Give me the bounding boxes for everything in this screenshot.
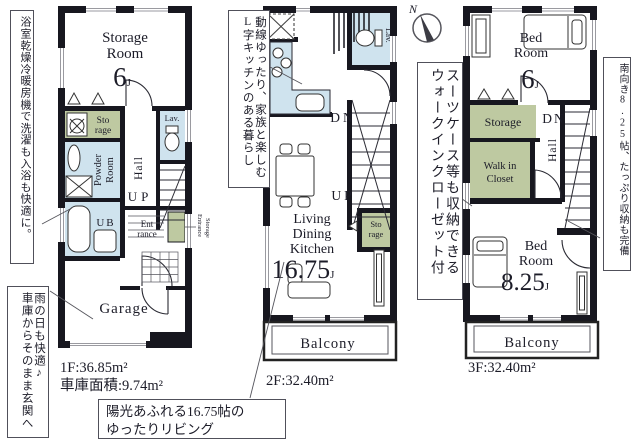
sto-label-2f-2: rage (369, 229, 384, 239)
callout-kitchen-line1: 動線ゆったり、家族と楽しむ (254, 16, 266, 182)
tv-board-icon-3f (577, 272, 587, 314)
lav-label-2f: Lav. (384, 28, 394, 43)
entrance-storage-label-2: Storage (204, 218, 211, 238)
callout-kitchen: 動線ゆったり、家族と楽しむ L字キッチンのある暮らし (228, 10, 270, 188)
wic-label-1: Walk in (484, 161, 517, 172)
ldk-label-2: Dining (293, 227, 332, 242)
up-label-2f: UP (331, 188, 354, 203)
callout-garage-line1: 雨の日も快適♪ (33, 292, 45, 432)
storage-label-3f: Storage (485, 115, 522, 129)
floorplan-page: Storage Room 6J Sto rage Powder Room UB … (0, 0, 640, 445)
bed825-label-2: Room (519, 254, 553, 269)
dn-label-3f: DN (542, 111, 566, 126)
callout-living-line2: ゆったりリビング (106, 421, 278, 439)
closet-icon-3f (472, 15, 490, 57)
compass: N (408, 2, 441, 42)
callout-south-room: 南向き8.25帖、たっぷり収納も完備 (603, 57, 631, 271)
bed6-size-label: 6J (521, 64, 540, 94)
sto-label-1f-2: rage (95, 126, 111, 136)
dn-label-2f: DN (330, 110, 356, 125)
floor1-area-label: 1F:36.85m² (60, 360, 128, 376)
toilet-icon-1f (165, 126, 179, 151)
hall-label-3f: Hall (547, 138, 559, 162)
ldk-size-label: 16.75J (272, 255, 336, 284)
door-arc-lav-2f (364, 70, 390, 96)
floor-3f: Bed Room 6J Storage Walk in Closet DN Ha… (463, 6, 598, 376)
stairs-3f (565, 108, 590, 228)
kitchen-sink-icon (296, 94, 324, 111)
dining-table-icon (276, 144, 314, 207)
floor3-area-label: 3F:32.40m² (468, 360, 536, 376)
bed6-label-1: Bed (520, 31, 543, 46)
floor-1f: Storage Room 6J Sto rage Powder Room UB … (58, 6, 211, 394)
entrance-label-2: rance (137, 229, 156, 239)
balcony-label-3f: Balcony (504, 335, 559, 351)
wic-label-2: Closet (487, 174, 514, 185)
garage-label: Garage (99, 301, 148, 317)
sto-label-1f-1: Sto (97, 116, 110, 126)
bed6-label-2: Room (514, 46, 548, 61)
storage-room-size: 6J (113, 62, 132, 92)
callout-kitchen-line2: L字キッチンのある暮らし (241, 16, 253, 182)
floor1-garage-area-label: 車庫面積:9.74m² (60, 377, 164, 394)
lav-label-1f: Lav. (165, 113, 180, 123)
powder-room-label-1: Powder (93, 153, 104, 186)
washing-machine-icon (67, 113, 87, 136)
tv-board-icon-2f (374, 250, 384, 306)
callout-garage-line2: 車庫からそのまま玄関へ (20, 292, 32, 432)
callout-wic-line1: スーツケース等も収納できる (444, 68, 459, 294)
refrigerator-icon (268, 14, 294, 39)
callout-south-text: 南向き8.25帖、たっぷり収納も完備 (616, 63, 627, 265)
entrance-storage-label-1: Entrance (196, 214, 203, 237)
entrance-storage-fill (168, 212, 185, 242)
floorplan-drawing: Storage Room 6J Sto rage Powder Room UB … (0, 0, 640, 445)
bed825-size-label: 8.25J (501, 269, 550, 296)
callout-living: 陽光あふれる16.75帖の ゆったりリビング (98, 399, 286, 439)
ub-label: UB (96, 217, 115, 229)
compass-north-label: N (408, 2, 418, 16)
floor-2f: Lav. DN UP Living Dining Kitchen 16.75J … (263, 6, 397, 389)
balcony-label-2f: Balcony (300, 336, 355, 352)
toilet-icon-2f (356, 30, 382, 46)
closet-door-marks-1f (68, 93, 104, 104)
bed825-label-1: Bed (525, 239, 548, 254)
powder-room-label-2: Room (105, 157, 116, 183)
closet-door-marks-3f (478, 89, 514, 99)
storage-room-label-2: Room (107, 46, 144, 62)
callout-garage: 雨の日も快適♪ 車庫からそのまま玄関へ (7, 286, 49, 438)
callout-living-line1: 陽光あふれる16.75帖の (106, 403, 278, 421)
callout-bathroom-text: 浴室乾燥冷暖房機で洗濯も入浴も快適に。 (18, 16, 30, 258)
sink-icon (68, 145, 80, 171)
callout-walk-in-closet: スーツケース等も収納できる ウォークインクローゼット付 (417, 62, 463, 300)
hall-label-1f: Hall (133, 156, 145, 180)
sto-label-2f-1: Sto (370, 219, 381, 229)
floor2-area-label: 2F:32.40m² (266, 373, 334, 389)
storage-room-label-1: Storage (102, 30, 148, 46)
entrance-label-1: Ent (141, 219, 154, 229)
ldk-label-1: Living (293, 212, 330, 227)
callout-bathroom: 浴室乾燥冷暖房機で洗濯も入浴も快適に。 (10, 10, 34, 264)
callout-wic-line2: ウォークインクローゼット付 (429, 68, 444, 294)
up-label-1f: UP (128, 189, 153, 204)
shower-pan-icon (66, 176, 92, 197)
